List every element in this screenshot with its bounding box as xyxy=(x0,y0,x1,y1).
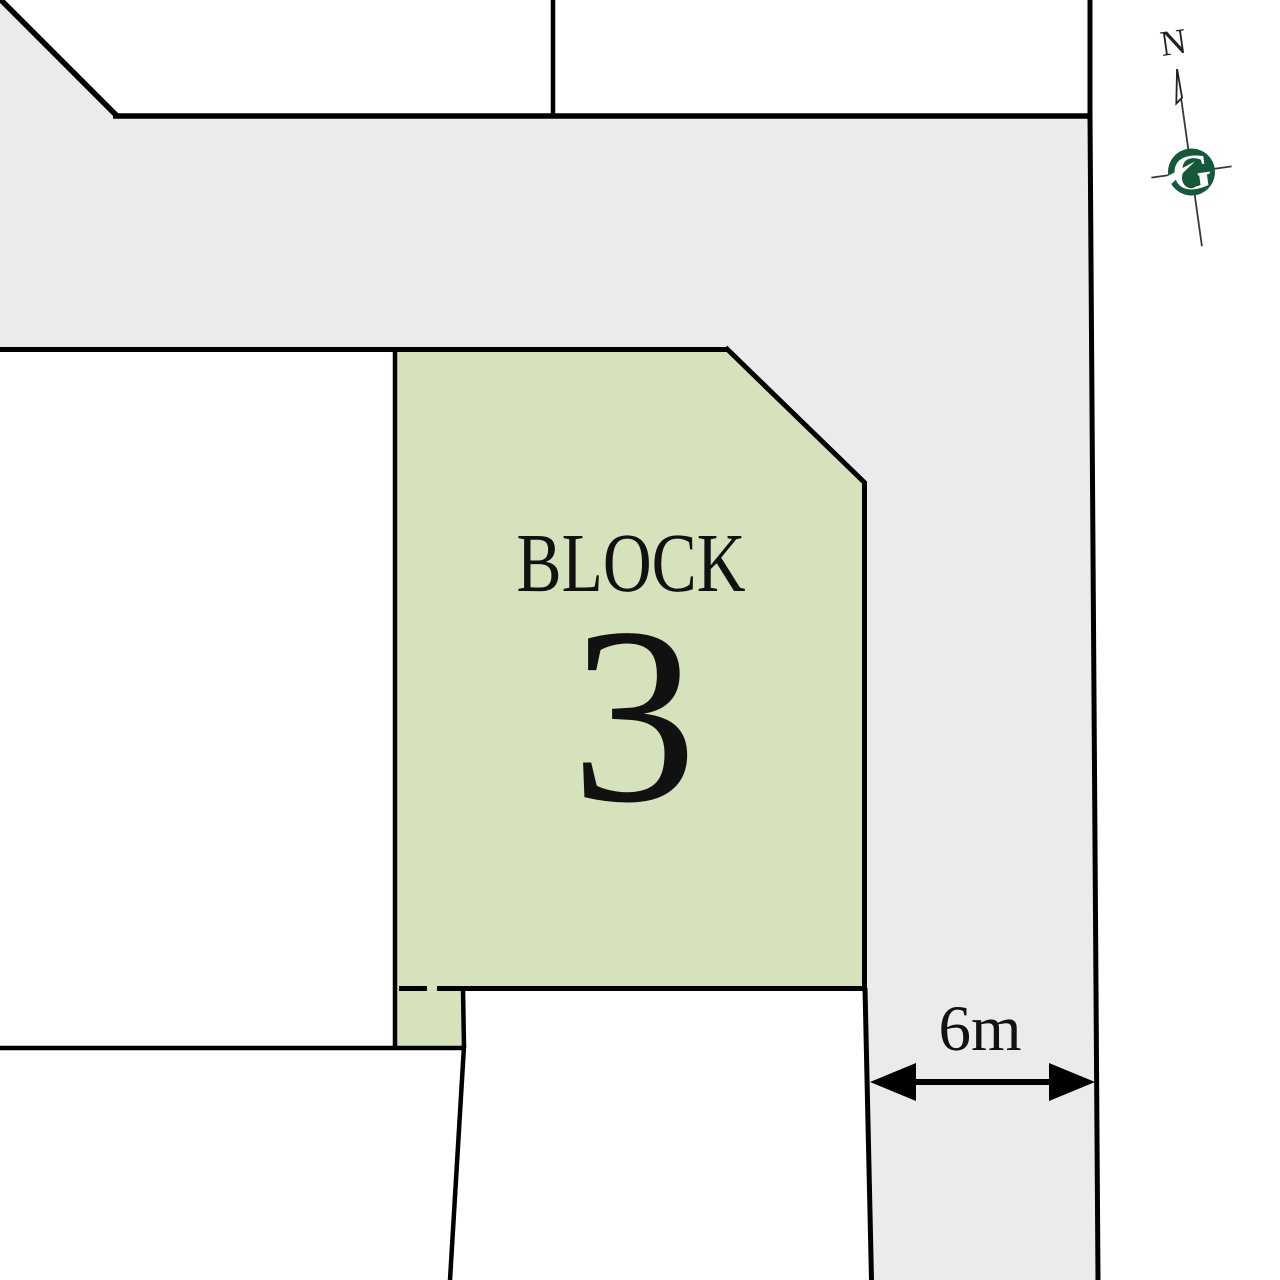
svg-text:3: 3 xyxy=(571,575,697,855)
svg-text:N: N xyxy=(1158,21,1189,64)
svg-text:6m: 6m xyxy=(938,993,1021,1065)
